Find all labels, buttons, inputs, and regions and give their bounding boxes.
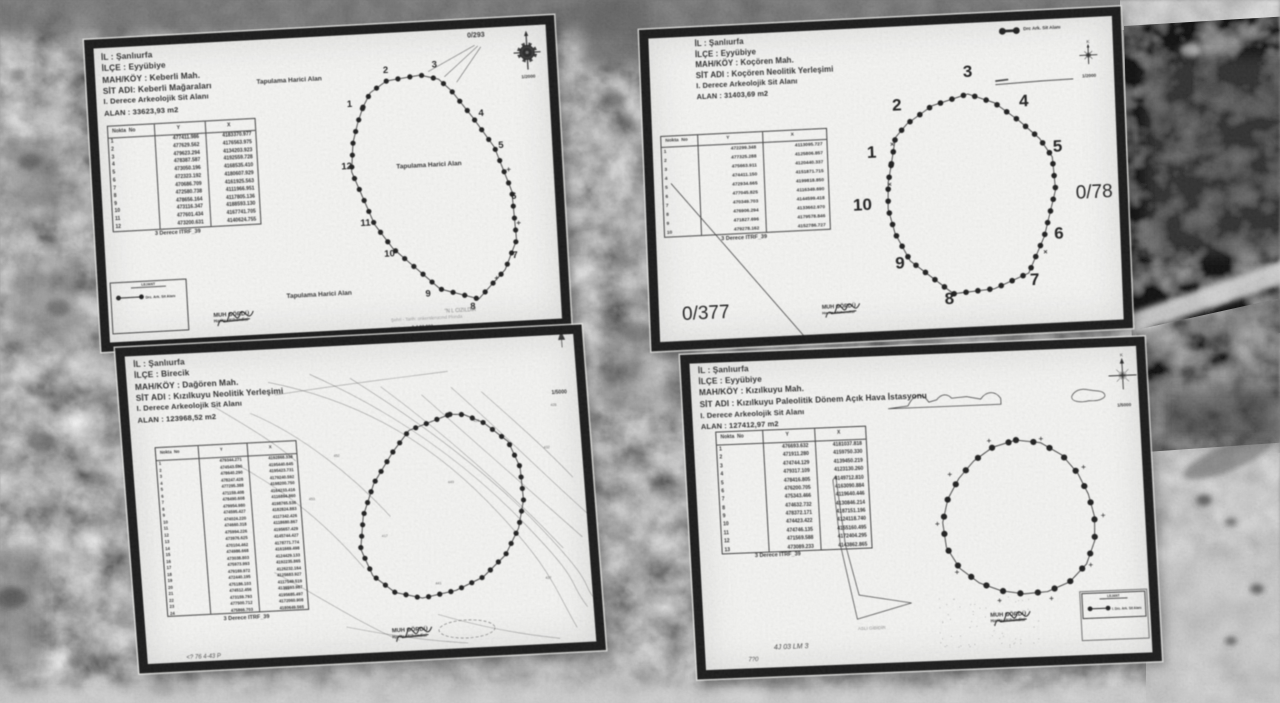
svg-text:441: 441 [435,581,441,585]
svg-text:428: 428 [550,403,556,407]
svg-text:1/2000: 1/2000 [1082,73,1097,79]
svg-text:K: K [1086,39,1089,44]
svg-text:452: 452 [334,454,340,458]
svg-text:K: K [1120,352,1123,357]
svg-text:426: 426 [473,419,479,423]
svg-text:Drc. Ark. Sit Alanı: Drc. Ark. Sit Alanı [145,294,175,300]
svg-text:437: 437 [545,576,551,580]
svg-text:453: 453 [309,497,315,501]
svg-text:432: 432 [543,445,549,449]
svg-text:449: 449 [448,480,454,484]
svg-text:417: 417 [382,534,388,538]
svg-text:1/2000: 1/2000 [521,73,536,79]
svg-text:1/5000: 1/5000 [1117,402,1132,408]
